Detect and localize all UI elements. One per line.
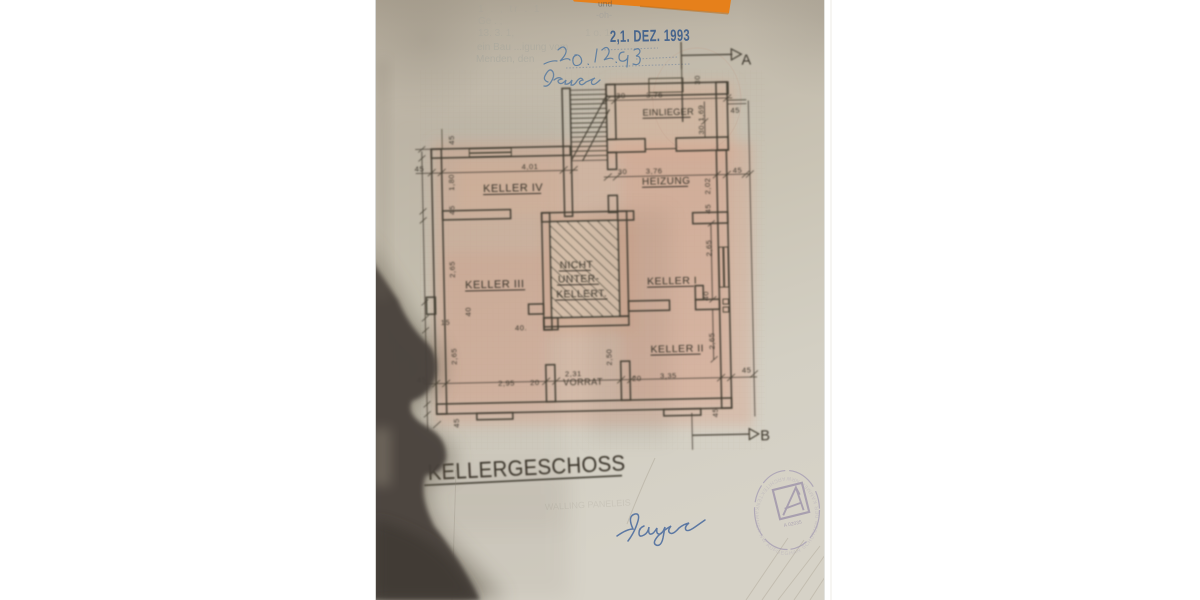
svg-text:13. 3. 1,: 13. 3. 1, [478, 28, 514, 39]
svg-text:45: 45 [742, 366, 752, 375]
svg-text:A: A [741, 52, 751, 68]
svg-text:B: B [760, 428, 770, 444]
svg-text:3,35: 3,35 [660, 371, 677, 380]
svg-text:Menden, den: Menden, den [476, 54, 534, 65]
svg-text:NICHT: NICHT [560, 260, 594, 272]
svg-text:20: 20 [632, 374, 642, 383]
svg-text:2,65: 2,65 [449, 348, 458, 365]
svg-text:40: 40 [464, 307, 473, 317]
svg-text:45: 45 [733, 166, 743, 175]
svg-text:ein Bau ...igung vom: ein Bau ...igung vom [477, 42, 568, 53]
svg-text:30: 30 [697, 125, 706, 135]
svg-text:15: 15 [441, 318, 451, 327]
svg-text:und: und [598, 0, 612, 9]
svg-text:3,76: 3,76 [646, 90, 663, 99]
svg-text:1,80: 1,80 [447, 174, 456, 191]
svg-text:3,76: 3,76 [646, 166, 663, 175]
svg-text:45: 45 [415, 164, 425, 173]
svg-text:45: 45 [447, 135, 456, 145]
svg-text:2,95: 2,95 [498, 378, 515, 387]
svg-text:45: 45 [703, 204, 712, 214]
svg-text:4,01: 4,01 [522, 162, 539, 171]
svg-text:30: 30 [618, 167, 628, 176]
svg-text:45: 45 [447, 205, 456, 215]
svg-text:30: 30 [693, 75, 702, 85]
svg-text:40: 40 [701, 291, 710, 301]
svg-text:2,02: 2,02 [703, 178, 712, 195]
svg-text:2,50: 2,50 [604, 349, 613, 366]
svg-text:1 o. 1/: 1 o. 1/ [585, 28, 613, 39]
svg-text:KELLER II: KELLER II [650, 343, 704, 356]
svg-text:45: 45 [730, 106, 740, 115]
svg-text:40.: 40. [515, 323, 527, 332]
svg-text:-oh-: -oh- [596, 10, 612, 20]
svg-text:UNTER-: UNTER- [558, 274, 600, 286]
svg-text:EINLIEGER: EINLIEGER [642, 107, 694, 118]
svg-text:KELLER I: KELLER I [647, 275, 697, 288]
svg-text:30: 30 [616, 91, 626, 100]
svg-text:20: 20 [530, 378, 540, 387]
svg-text:2,31: 2,31 [565, 369, 582, 378]
svg-text:45: 45 [452, 418, 461, 428]
svg-text:2,65: 2,65 [707, 332, 716, 349]
svg-text:45: 45 [711, 408, 720, 418]
svg-text:1,69: 1,69 [696, 105, 705, 122]
svg-text:1 . , tr . 1: 1 . , tr . 1 [478, 4, 541, 15]
svg-text:Ge . ;: Ge . ; [478, 16, 502, 27]
svg-text:2,65: 2,65 [704, 240, 713, 257]
svg-text:2,65: 2,65 [448, 261, 457, 278]
svg-text:2,1. DEZ. 1993: 2,1. DEZ. 1993 [610, 25, 690, 45]
